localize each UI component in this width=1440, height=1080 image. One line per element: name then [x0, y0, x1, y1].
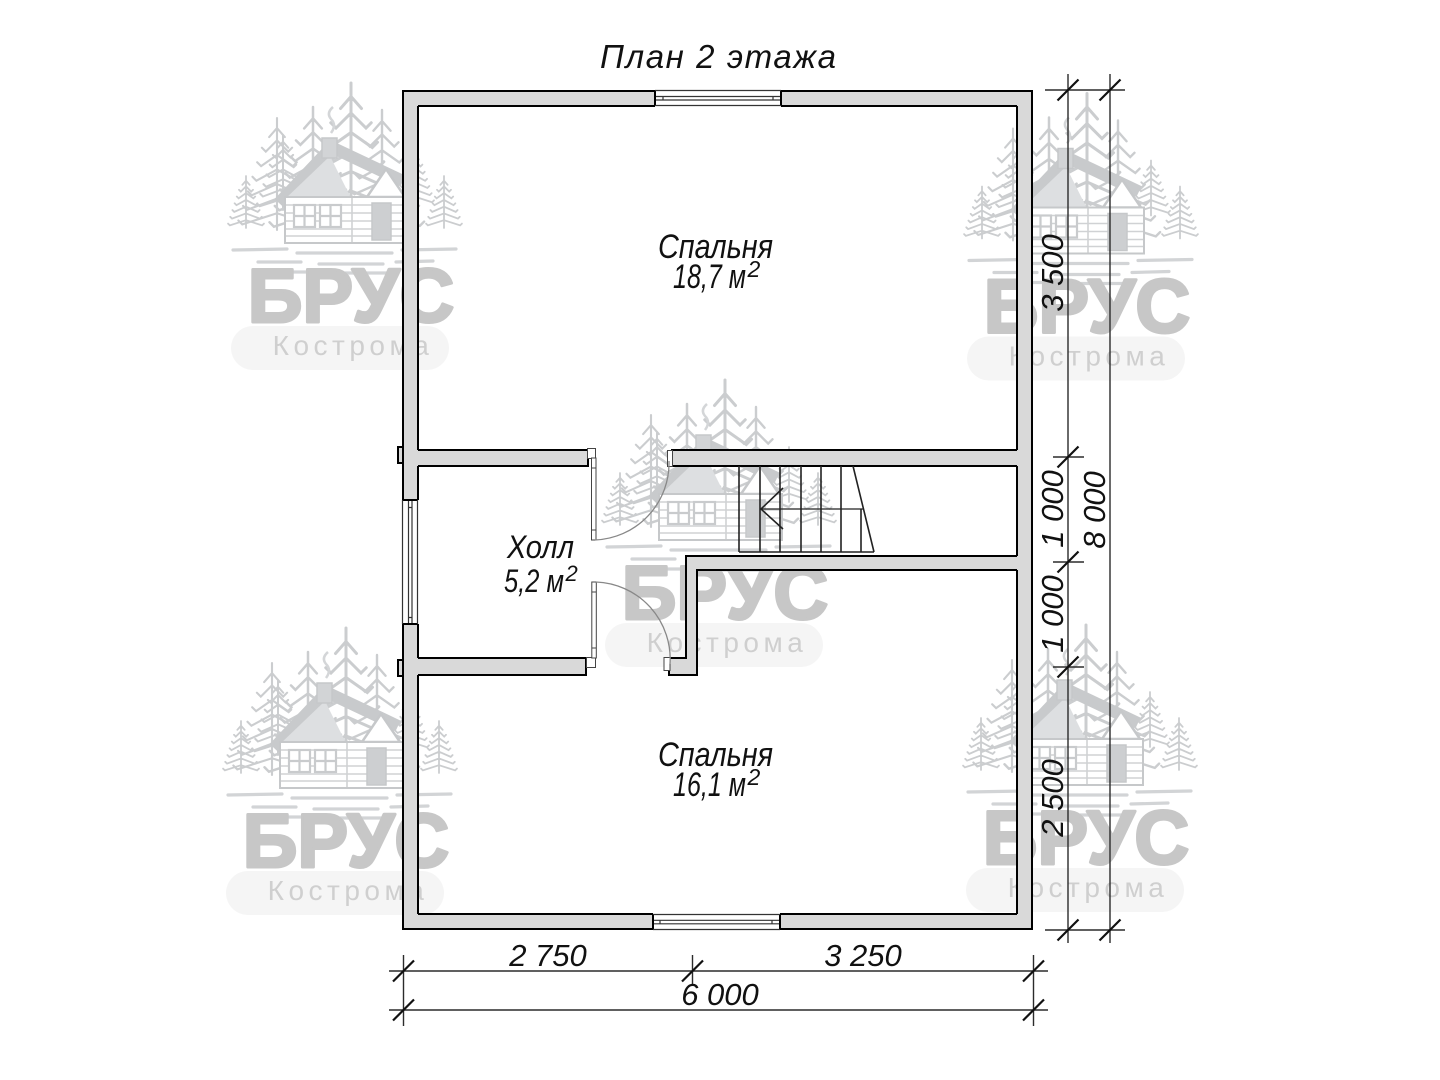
svg-text:6 000: 6 000 [681, 977, 759, 1012]
svg-text:План 2 этажа: План 2 этажа [600, 38, 836, 75]
svg-text:Холл: Холл [506, 529, 574, 565]
svg-text:2 750: 2 750 [508, 938, 587, 973]
svg-text:2: 2 [747, 764, 761, 790]
svg-text:18,7 м: 18,7 м [673, 258, 746, 296]
svg-text:2 500: 2 500 [1035, 759, 1070, 838]
svg-text:3 500: 3 500 [1035, 234, 1070, 312]
svg-text:1 000: 1 000 [1035, 470, 1070, 548]
svg-text:8 000: 8 000 [1077, 471, 1112, 549]
svg-text:16,1 м: 16,1 м [673, 766, 746, 804]
svg-text:1 000: 1 000 [1035, 575, 1070, 653]
svg-text:2: 2 [747, 256, 761, 282]
svg-text:3 250: 3 250 [824, 938, 902, 973]
svg-text:5,2 м: 5,2 м [504, 563, 564, 599]
svg-text:2: 2 [565, 561, 578, 586]
